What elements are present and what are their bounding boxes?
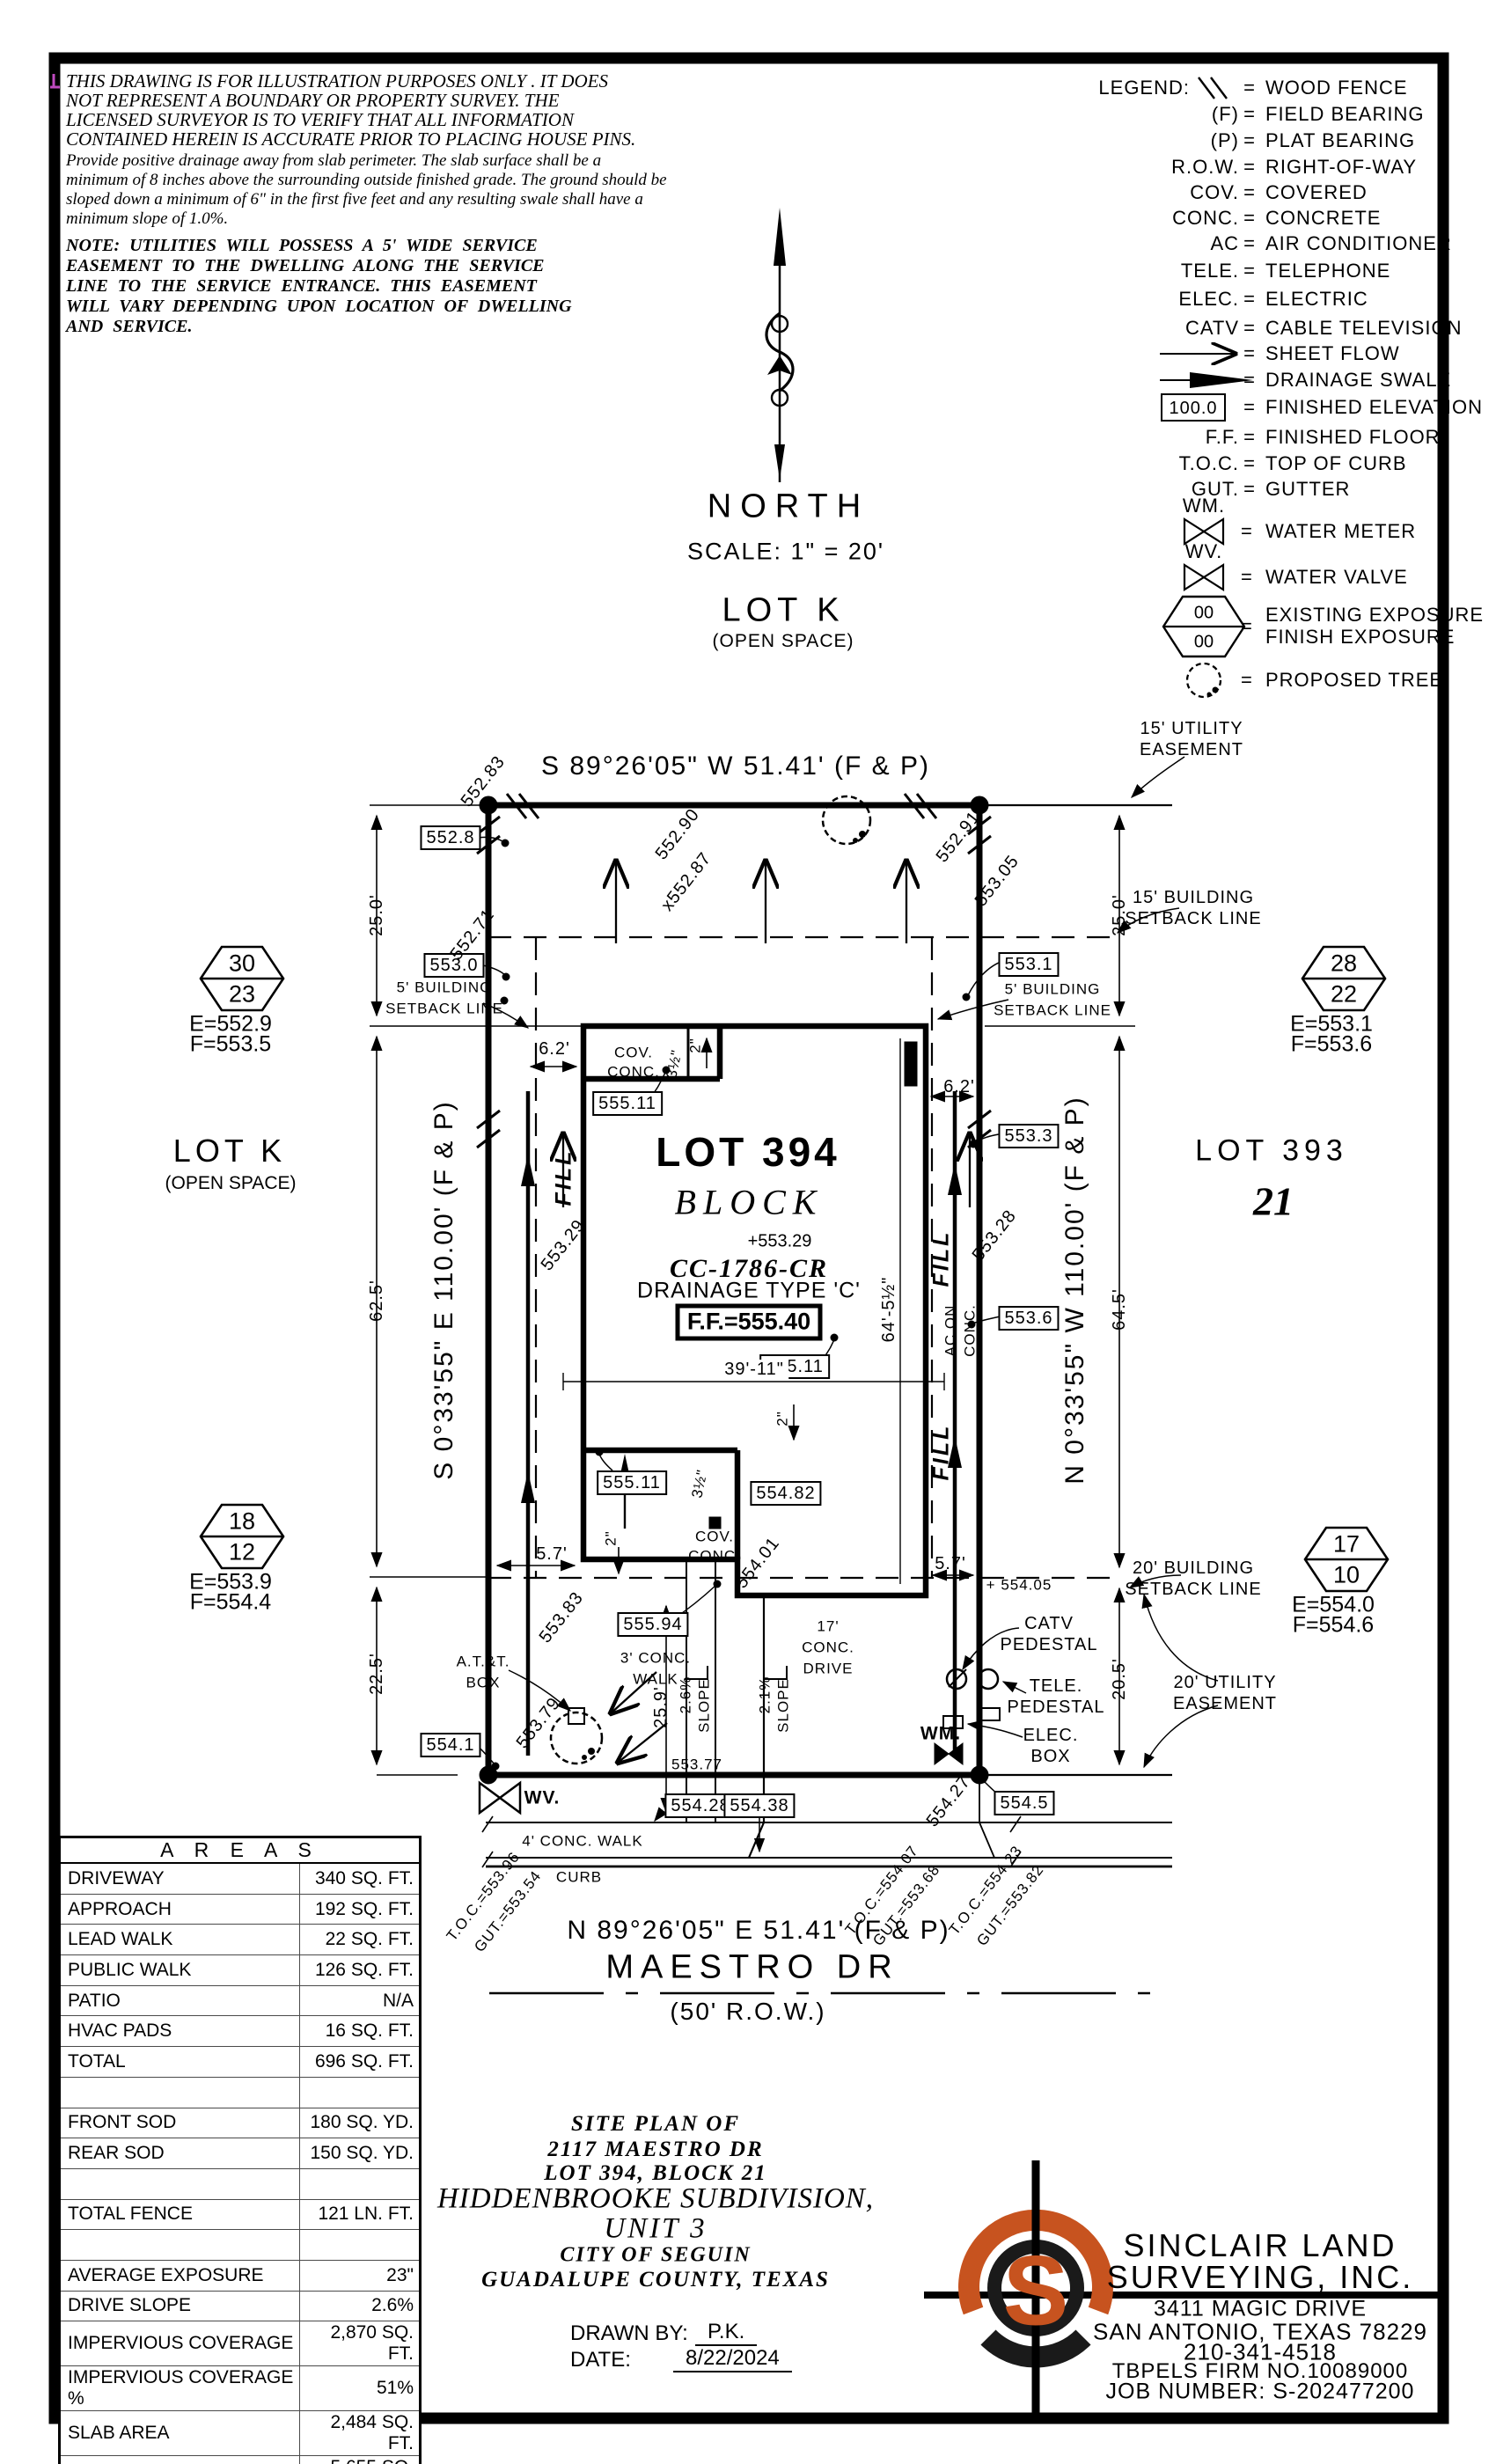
areas-row-value: 126 SQ. FT. <box>300 1955 420 1986</box>
plat-annotation: 2" <box>604 1530 619 1546</box>
plat-annotation: 15' BUILDING <box>1133 889 1254 906</box>
legend-abbr: TELE. <box>1107 260 1239 282</box>
elec-box-icon <box>980 1708 1000 1720</box>
bearing-east-line: N 0°33'55" W 110.00' (F & P) <box>1060 1096 1090 1484</box>
marker-sw-top: 18 <box>229 1508 255 1536</box>
plat-annotation: 2.6% <box>678 1676 693 1714</box>
plat-annotation: 20' BUILDING <box>1133 1559 1254 1577</box>
plat-annotation: 2" <box>688 1038 703 1053</box>
plat-annotation: CURB <box>556 1870 602 1885</box>
plat-annotation: COV. <box>614 1045 653 1060</box>
spot-elevation-center: +553.29 <box>748 1232 812 1252</box>
logo-letter: S <box>1003 2234 1069 2348</box>
legend-finished-elev-value: 100.0 <box>1163 397 1223 420</box>
plat-annotation: 552.8 <box>420 825 480 850</box>
title-line-5: UNIT 3 <box>604 2213 707 2246</box>
legend-desc: ELECTRIC <box>1265 288 1368 311</box>
areas-row: TOTAL FENCE121 LN. FT. <box>61 2199 419 2230</box>
legend-eq: = <box>1241 129 1258 152</box>
legend-desc: GUTTER <box>1265 478 1350 501</box>
adjacent-block-number: 21 <box>1253 1178 1294 1225</box>
plat-annotation: 64'-5½" <box>879 1272 898 1347</box>
bearing-west-line: S 0°33'55" E 110.00' (F & P) <box>429 1100 459 1479</box>
plat-annotation: SETBACK LINE <box>385 1001 503 1016</box>
legend-eq: = <box>1241 396 1258 419</box>
utility-note-line: LINE TO THE SERVICE ENTRANCE. THIS EASEM… <box>66 276 537 297</box>
plat-annotation: CONC. <box>963 1304 978 1357</box>
plat-annotation: 6.2' <box>943 1078 975 1096</box>
legend-abbr: ELEC. <box>1107 288 1239 311</box>
legend-eq: = <box>1241 566 1253 589</box>
firm-name-2: SURVEYING, INC. <box>1107 2259 1413 2296</box>
legend-desc: TOP OF CURB <box>1265 452 1407 475</box>
utility-note-line: AND SERVICE. <box>66 317 192 337</box>
plat-annotation: 553.6 <box>998 1306 1059 1331</box>
plat-annotation: EASEMENT <box>1140 741 1243 759</box>
plat-annotation: FILL <box>931 1230 953 1287</box>
plat-annotation: PEDESTAL <box>1001 1636 1098 1654</box>
legend-eq: = <box>1241 232 1258 255</box>
plat-annotation: 5' BUILDING <box>397 980 493 995</box>
plat-annotation: 554.1 <box>420 1733 480 1757</box>
areas-row-label: PUBLIC WALK <box>61 1955 300 1986</box>
date-value: 8/22/2024 <box>673 2346 792 2372</box>
areas-row: LOT AREA5,655 SQ. FT. <box>61 2456 419 2464</box>
areas-row-label: IMPERVIOUS COVERAGE <box>61 2321 300 2366</box>
plat-annotation: 62.5' <box>368 1280 385 1322</box>
plat-annotation: + 554.05 <box>986 1578 1052 1593</box>
marker-se-bottom: 10 <box>1333 1562 1360 1589</box>
legend-desc: DRAINAGE SWALE <box>1265 369 1451 392</box>
areas-row: SLAB AREA2,484 SQ. FT. <box>61 2411 419 2456</box>
areas-row: IMPERVIOUS COVERAGE2,870 SQ. FT. <box>61 2321 419 2366</box>
legend-abbr: CATV <box>1107 317 1239 340</box>
legend-exposure-desc2: FINISH EXPOSURE <box>1265 626 1455 649</box>
areas-table: A R E A S DRIVEWAY340 SQ. FT.APPROACH192… <box>58 1836 422 2464</box>
att-box-icon <box>568 1708 584 1724</box>
plat-annotation: SLOPE <box>776 1678 791 1733</box>
areas-row-value: 696 SQ. FT. <box>300 2047 420 2078</box>
plat-annotation: 22.5' <box>368 1653 385 1695</box>
title-line-7: GUADALUPE COUNTY, TEXAS <box>481 2268 830 2292</box>
drainage-note-line: sloped down a minimum of 6" in the first… <box>66 190 643 209</box>
open-space-lot-label: LOT K <box>722 592 844 630</box>
areas-row-label: DRIVE SLOPE <box>61 2291 300 2321</box>
plat-annotation: 2" <box>775 1411 790 1426</box>
legend-exposure-top: 00 <box>1194 604 1214 624</box>
lot-number-label: LOT 394 <box>656 1128 840 1176</box>
plat-annotation: 555.11 <box>597 1470 667 1495</box>
plat-annotation: EASEMENT <box>1173 1695 1277 1712</box>
legend-abbr: R.O.W. <box>1107 156 1239 179</box>
legend-eq: = <box>1241 288 1258 311</box>
plat-annotation: FILL <box>554 1149 576 1206</box>
areas-row-value: 23" <box>300 2260 420 2291</box>
marker-sw-bottom: 12 <box>229 1539 255 1566</box>
plat-annotation: 17' <box>817 1619 839 1634</box>
areas-row-label: TOTAL <box>61 2047 300 2078</box>
disclaimer-line: CONTAINED HEREIN IS ACCURATE PRIOR TO PL… <box>66 128 635 150</box>
areas-row-label: LEAD WALK <box>61 1925 300 1955</box>
legend-eq: = <box>1241 452 1258 475</box>
legend-eq: = <box>1241 317 1258 340</box>
areas-row <box>61 2077 419 2108</box>
drainage-note-line: Provide positive drainage away from slab… <box>66 151 601 171</box>
areas-row-value: 150 SQ. YD. <box>300 2138 420 2169</box>
plat-annotation: COV. <box>695 1529 734 1544</box>
areas-row-label: PATIO <box>61 1985 300 2016</box>
legend-eq: = <box>1241 156 1258 179</box>
areas-row: PUBLIC WALK126 SQ. FT. <box>61 1955 419 1986</box>
legend-eq: = <box>1241 478 1258 501</box>
plat-annotation: 5' BUILDING <box>1005 982 1101 997</box>
title-line-6: CITY OF SEGUIN <box>560 2244 751 2268</box>
areas-row-label: APPROACH <box>61 1894 300 1925</box>
drainage-note-line: minimum of 8 inches above the surroundin… <box>66 171 667 190</box>
areas-row: LEAD WALK22 SQ. FT. <box>61 1925 419 1955</box>
marker-nw-bottom: 23 <box>229 981 255 1008</box>
plat-annotation: CONC. <box>688 1549 741 1564</box>
date-label: DATE: <box>570 2348 631 2372</box>
plat-annotation: SLOPE <box>697 1678 712 1733</box>
legend-tree-desc: PROPOSED TREE <box>1265 669 1443 692</box>
plat-annotation: SETBACK LINE <box>1125 910 1261 928</box>
plat-annotation: CATV <box>1024 1615 1074 1632</box>
areas-title: A R E A S <box>61 1838 419 1864</box>
plat-annotation: 4' CONC. WALK <box>522 1834 642 1849</box>
marker-se-top: 17 <box>1333 1531 1360 1558</box>
marker-nw-finish: F=553.5 <box>190 1032 271 1058</box>
legend-eq: = <box>1241 77 1258 99</box>
areas-row-label: HVAC PADS <box>61 2016 300 2047</box>
areas-row: PATION/A <box>61 1985 419 2016</box>
legend-abbr: AC <box>1107 232 1239 255</box>
plat-annotation: 553.1 <box>998 952 1059 977</box>
legend-abbr: CONC. <box>1107 207 1239 230</box>
legend-eq: = <box>1241 342 1258 365</box>
plat-annotation: 20.5' <box>1111 1658 1128 1700</box>
title-line-1: SITE PLAN OF <box>571 2112 740 2137</box>
areas-row: HVAC PADS16 SQ. FT. <box>61 2016 419 2047</box>
legend-wm-abbr: WM. <box>1176 495 1232 517</box>
adjacent-lot-right-name: LOT 393 <box>1195 1134 1348 1169</box>
plat-annotation: 5.7' <box>935 1555 966 1573</box>
water-valve-icon <box>480 1783 520 1813</box>
legend-desc: AIR CONDITIONER <box>1265 232 1452 255</box>
plat-annotation: WALK <box>633 1672 678 1687</box>
title-line-2: 2117 MAESTRO DR <box>547 2138 763 2162</box>
legend-eq: = <box>1241 520 1253 543</box>
areas-row: AVERAGE EXPOSURE23" <box>61 2260 419 2291</box>
areas-row <box>61 2230 419 2261</box>
drainage-note-line: minimum slope of 1.0%. <box>66 209 228 229</box>
marker-ne-top: 28 <box>1331 950 1357 978</box>
plat-annotation: 25.9' <box>652 1686 670 1728</box>
areas-row-value <box>300 2168 420 2199</box>
legend-eq: = <box>1241 369 1258 392</box>
areas-row-value: 51% <box>300 2366 420 2411</box>
areas-row-value: 2,870 SQ. FT. <box>300 2321 420 2366</box>
marker-nw-top: 30 <box>229 950 255 978</box>
plat-annotation: 554.38 <box>723 1793 795 1818</box>
plat-annotation: 3' CONC. <box>620 1651 691 1666</box>
plat-annotation: 555.94 <box>617 1612 688 1637</box>
legend-desc: TELEPHONE <box>1265 260 1390 282</box>
areas-row-label: REAR SOD <box>61 2138 300 2169</box>
plat-annotation: PEDESTAL <box>1008 1698 1105 1716</box>
legend-wv-abbr: WV. <box>1176 540 1232 563</box>
areas-row-value: 340 SQ. FT. <box>300 1864 420 1894</box>
areas-row-value <box>300 2077 420 2108</box>
areas-row: TOTAL696 SQ. FT. <box>61 2047 419 2078</box>
legend-desc: FINISHED ELEVATION <box>1265 396 1483 419</box>
adjacent-lot-left-name: LOT K <box>173 1133 286 1170</box>
areas-row-label: FRONT SOD <box>61 2108 300 2138</box>
areas-row-label: AVERAGE EXPOSURE <box>61 2260 300 2291</box>
block-label: BLOCK <box>675 1182 824 1223</box>
legend-desc: CABLE TELEVISION <box>1265 317 1462 340</box>
drawn-by-label: DRAWN BY: <box>570 2321 688 2346</box>
legend-desc: PLAT BEARING <box>1265 129 1415 152</box>
marker-se-finish: F=554.6 <box>1293 1613 1374 1639</box>
drawn-by-value: P.K. <box>695 2320 757 2346</box>
marker-ne-finish: F=553.6 <box>1291 1032 1372 1058</box>
plat-annotation: AC ON <box>943 1305 958 1357</box>
legend-eq: = <box>1241 426 1258 449</box>
open-space-sub-label: (OPEN SPACE) <box>713 631 854 652</box>
legend-eq: = <box>1241 181 1258 204</box>
areas-row-value: 2.6% <box>300 2291 420 2321</box>
plat-annotation: 555.11 <box>592 1091 663 1116</box>
areas-row: DRIVEWAY340 SQ. FT. <box>61 1864 419 1894</box>
areas-row-value <box>300 2230 420 2261</box>
legend-eq: = <box>1241 260 1258 282</box>
plat-annotation: 2.1% <box>758 1676 773 1714</box>
areas-row-label: DRIVEWAY <box>61 1864 300 1894</box>
legend-eq: = <box>1241 615 1253 638</box>
plat-annotation: 554.5 <box>994 1791 1054 1815</box>
legend-abbr: COV. <box>1107 181 1239 204</box>
areas-row-value: 192 SQ. FT. <box>300 1894 420 1925</box>
legend-abbr: (F) <box>1107 103 1239 126</box>
marker-ne-bottom: 22 <box>1331 981 1357 1008</box>
plat-annotation: 20' UTILITY <box>1173 1674 1276 1691</box>
legend-desc: FIELD BEARING <box>1265 103 1424 126</box>
areas-row: FRONT SOD180 SQ. YD. <box>61 2108 419 2138</box>
plat-annotation: 6.2' <box>539 1040 570 1058</box>
areas-row-value: 180 SQ. YD. <box>300 2108 420 2138</box>
legend-desc: COVERED <box>1265 181 1368 204</box>
utility-note-line: EASEMENT TO THE DWELLING ALONG THE SERVI… <box>66 256 545 276</box>
legend-abbr: (P) <box>1107 129 1239 152</box>
scale-label: SCALE: 1" = 20' <box>687 539 884 566</box>
areas-row-value: 121 LN. FT. <box>300 2199 420 2230</box>
legend-exposure-bottom: 00 <box>1194 633 1214 653</box>
plat-annotation: 15' UTILITY <box>1140 720 1243 737</box>
plat-annotation: 553.77 <box>671 1757 722 1772</box>
plat-annotation: BOX <box>1030 1748 1070 1765</box>
areas-row: APPROACH192 SQ. FT. <box>61 1894 419 1925</box>
legend-wm-desc: WATER METER <box>1265 520 1416 543</box>
plat-annotation: SETBACK LINE <box>1125 1580 1261 1598</box>
areas-row-value: N/A <box>300 1985 420 2016</box>
plat-annotation: CONC. <box>802 1640 854 1655</box>
areas-row-value: 2,484 SQ. FT. <box>300 2411 420 2456</box>
legend-desc: FINISHED FLOOR <box>1265 426 1441 449</box>
areas-row-label: LOT AREA <box>61 2456 300 2464</box>
plat-annotation: ELEC. <box>1023 1727 1079 1744</box>
adjacent-lot-left-sub: (OPEN SPACE) <box>165 1173 297 1194</box>
areas-row-value: 16 SQ. FT. <box>300 2016 420 2047</box>
site-plan-sheet: THIS DRAWING IS FOR ILLUSTRATION PURPOSE… <box>0 0 1496 2464</box>
firm-job-number: JOB NUMBER: S-202477200 <box>1106 2380 1415 2405</box>
areas-row-label: IMPERVIOUS COVERAGE % <box>61 2366 300 2411</box>
areas-row-label <box>61 2077 300 2108</box>
legend-abbr: F.F. <box>1107 426 1239 449</box>
areas-row-label <box>61 2230 300 2261</box>
finished-floor-label: F.F.=555.40 <box>687 1309 810 1336</box>
title-line-4: HIDDENBROOKE SUBDIVISION, <box>437 2183 874 2216</box>
areas-row-value: 5,655 SQ. FT. <box>300 2456 420 2464</box>
areas-row-label: SLAB AREA <box>61 2411 300 2456</box>
plat-annotation: 5.7' <box>536 1545 568 1563</box>
areas-row-label <box>61 2168 300 2199</box>
marker-sw-finish: F=554.4 <box>190 1590 271 1616</box>
areas-row: REAR SOD150 SQ. YD. <box>61 2138 419 2169</box>
legend-abbr: T.O.C. <box>1107 452 1239 475</box>
legend-title: LEGEND: <box>1091 77 1190 99</box>
areas-row: IMPERVIOUS COVERAGE %51% <box>61 2366 419 2411</box>
street-row-label: (50' R.O.W.) <box>670 1998 825 2026</box>
plat-annotation: TELE. <box>1030 1677 1083 1695</box>
drainage-type-label: DRAINAGE TYPE 'C' <box>637 1279 861 1304</box>
plat-annotation: CONC. <box>607 1065 660 1080</box>
plat-annotation: WM. <box>920 1725 961 1743</box>
areas-row-value: 22 SQ. FT. <box>300 1925 420 1955</box>
plat-annotation: FILL <box>931 1424 953 1481</box>
plat-annotation: SETBACK LINE <box>994 1003 1111 1018</box>
legend-desc: RIGHT-OF-WAY <box>1265 156 1417 179</box>
legend-desc: WOOD FENCE <box>1265 77 1408 99</box>
areas-row-label: TOTAL FENCE <box>61 2199 300 2230</box>
plat-annotation: BOX <box>466 1676 501 1690</box>
legend-eq: = <box>1241 207 1258 230</box>
plat-annotation: 554.82 <box>750 1481 821 1506</box>
north-label: NORTH <box>708 488 869 526</box>
plat-annotation: A.T.&T. <box>457 1654 510 1669</box>
legend-exposure-desc1: EXISTING EXPOSURE <box>1265 604 1484 627</box>
areas-row <box>61 2168 419 2199</box>
legend-eq: = <box>1241 103 1258 126</box>
plat-annotation: 25.0' <box>368 894 385 936</box>
plat-annotation: DRIVE <box>803 1661 854 1676</box>
legend-wv-desc: WATER VALVE <box>1265 566 1408 589</box>
legend-desc: SHEET FLOW <box>1265 342 1400 365</box>
legend-eq: = <box>1241 669 1253 692</box>
legend-desc: CONCRETE <box>1265 207 1381 230</box>
water-meter-icon <box>935 1743 963 1764</box>
plat-annotation: 64.5' <box>1111 1288 1128 1331</box>
plat-annotation: WV. <box>524 1789 561 1808</box>
north-arrow-icon <box>766 208 793 482</box>
bearing-north-line: S 89°26'05" W 51.41' (F & P) <box>541 752 930 781</box>
plat-annotation: 39'-11" <box>720 1360 788 1379</box>
street-name: MAESTRO DR <box>605 1949 898 1987</box>
plat-annotation: 553.3 <box>998 1124 1059 1148</box>
utility-note-line: WILL VARY DEPENDING UPON LOCATION OF DWE… <box>66 297 572 317</box>
utility-note-line: NOTE: UTILITIES WILL POSSESS A 5' WIDE S… <box>66 236 538 256</box>
areas-row: DRIVE SLOPE2.6% <box>61 2291 419 2321</box>
